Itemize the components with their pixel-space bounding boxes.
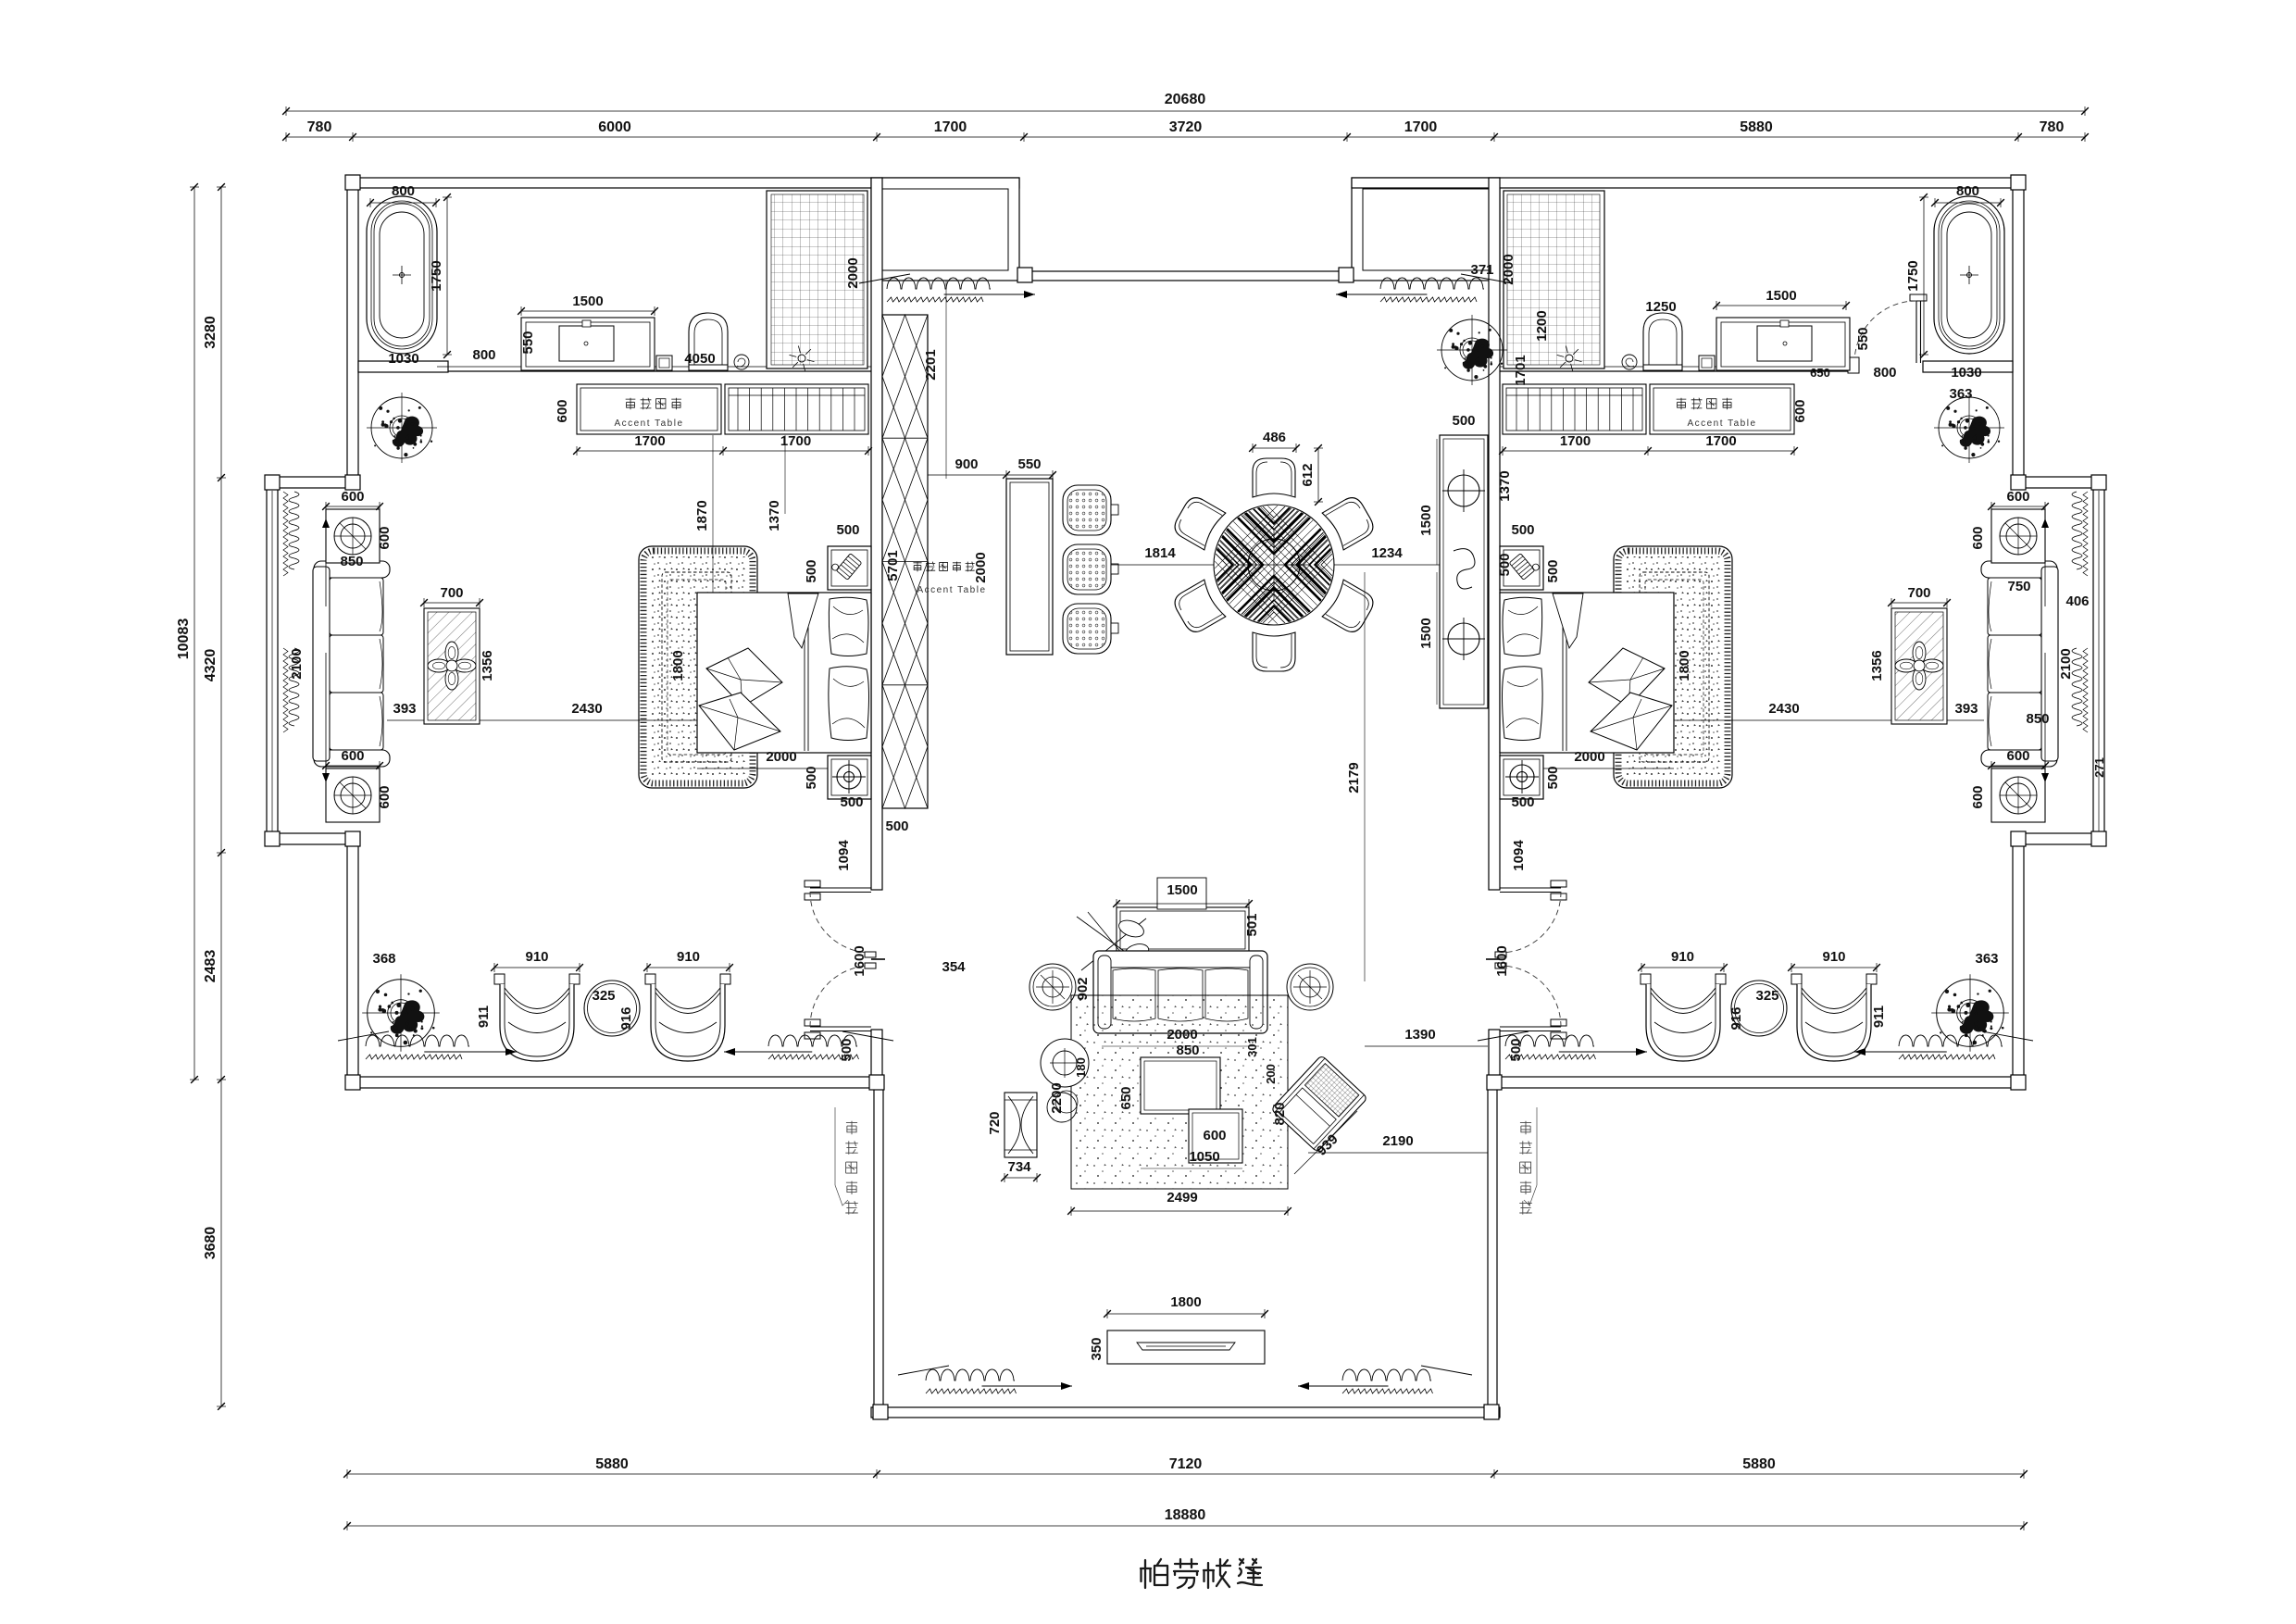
svg-text:500: 500: [1545, 766, 1561, 789]
svg-text:Accent Table: Accent Table: [917, 585, 986, 595]
svg-text:2000: 2000: [1574, 749, 1604, 765]
svg-text:1390: 1390: [1404, 1027, 1435, 1043]
svg-text:916: 916: [1728, 1006, 1744, 1030]
svg-text:612: 612: [1300, 463, 1316, 486]
svg-text:600: 600: [1792, 399, 1808, 422]
svg-text:2430: 2430: [571, 701, 602, 717]
svg-text:Accent Table: Accent Table: [614, 418, 683, 429]
svg-text:550: 550: [520, 331, 536, 354]
svg-text:600: 600: [555, 399, 570, 422]
svg-text:500: 500: [1511, 522, 1534, 538]
svg-text:1700: 1700: [634, 433, 665, 449]
svg-text:10083: 10083: [176, 618, 192, 660]
svg-text:180: 180: [1074, 1057, 1088, 1078]
svg-text:2483: 2483: [203, 950, 218, 983]
svg-text:910: 910: [525, 949, 548, 965]
svg-text:1500: 1500: [1167, 882, 1197, 898]
svg-text:363: 363: [1975, 951, 1998, 967]
svg-text:200: 200: [1264, 1064, 1278, 1084]
svg-text:911: 911: [1871, 1006, 1887, 1028]
svg-text:368: 368: [372, 951, 395, 967]
svg-text:600: 600: [1970, 526, 1986, 549]
svg-text:393: 393: [1954, 701, 1978, 717]
svg-text:500: 500: [1452, 413, 1475, 429]
svg-text:1750: 1750: [429, 260, 444, 291]
svg-text:1600: 1600: [1494, 945, 1510, 976]
svg-text:820: 820: [1272, 1102, 1288, 1125]
svg-text:20680: 20680: [1165, 92, 1206, 107]
svg-text:1356: 1356: [1869, 650, 1885, 681]
svg-text:2179: 2179: [1346, 762, 1362, 793]
svg-text:1701: 1701: [1513, 355, 1529, 385]
svg-text:2000: 2000: [1501, 254, 1516, 284]
svg-text:800: 800: [1873, 365, 1896, 381]
svg-text:5701: 5701: [885, 550, 901, 581]
svg-text:700: 700: [1907, 585, 1930, 601]
svg-text:3680: 3680: [203, 1227, 218, 1260]
svg-text:911: 911: [476, 1006, 492, 1028]
svg-text:550: 550: [1017, 456, 1041, 472]
svg-text:2100: 2100: [289, 648, 305, 679]
svg-text:1094: 1094: [836, 840, 852, 871]
svg-text:1050: 1050: [1189, 1149, 1219, 1165]
svg-text:1750: 1750: [1905, 260, 1921, 291]
svg-text:500: 500: [1545, 559, 1561, 582]
svg-text:2190: 2190: [1382, 1133, 1413, 1149]
svg-text:2430: 2430: [1768, 701, 1799, 717]
svg-text:1800: 1800: [1677, 650, 1692, 681]
svg-text:1700: 1700: [934, 119, 967, 135]
svg-text:500: 500: [885, 818, 908, 834]
svg-text:3280: 3280: [203, 316, 218, 349]
svg-text:1356: 1356: [480, 650, 495, 681]
svg-text:1200: 1200: [1534, 310, 1550, 341]
svg-text:1370: 1370: [1497, 470, 1513, 501]
svg-text:850: 850: [2026, 711, 2049, 727]
svg-text:800: 800: [392, 183, 415, 199]
svg-text:1870: 1870: [694, 500, 710, 531]
svg-text:2499: 2499: [1167, 1190, 1197, 1206]
svg-text:2000: 2000: [1167, 1027, 1197, 1043]
svg-text:900: 900: [955, 456, 978, 472]
svg-text:2000: 2000: [845, 257, 861, 288]
svg-text:1370: 1370: [767, 500, 782, 531]
svg-text:1030: 1030: [388, 351, 418, 367]
svg-text:1800: 1800: [1170, 1294, 1201, 1310]
svg-text:1500: 1500: [572, 294, 603, 309]
svg-text:4320: 4320: [203, 649, 218, 682]
svg-text:600: 600: [1970, 785, 1986, 808]
svg-text:650: 650: [1118, 1086, 1134, 1109]
svg-text:500: 500: [836, 522, 859, 538]
svg-text:271: 271: [2092, 757, 2106, 778]
svg-text:5880: 5880: [595, 1456, 629, 1472]
svg-text:1700: 1700: [1705, 433, 1736, 449]
svg-text:1600: 1600: [852, 945, 867, 976]
svg-text:4050: 4050: [684, 351, 715, 367]
svg-text:1814: 1814: [1144, 545, 1176, 561]
svg-text:850: 850: [340, 554, 363, 569]
svg-text:600: 600: [2006, 489, 2029, 505]
svg-text:301: 301: [1245, 1037, 1259, 1057]
svg-text:916: 916: [618, 1006, 634, 1030]
svg-text:393: 393: [393, 701, 416, 717]
svg-text:325: 325: [592, 988, 615, 1004]
svg-text:600: 600: [377, 785, 393, 808]
svg-text:354: 354: [942, 959, 966, 975]
svg-text:600: 600: [341, 748, 364, 764]
svg-text:1700: 1700: [1404, 119, 1438, 135]
svg-text:7120: 7120: [1169, 1456, 1203, 1472]
svg-text:1800: 1800: [670, 650, 686, 681]
svg-text:780: 780: [2040, 119, 2065, 135]
svg-text:600: 600: [1203, 1128, 1226, 1143]
svg-text:500: 500: [840, 794, 863, 810]
svg-text:650: 650: [1810, 366, 1830, 380]
svg-text:600: 600: [377, 526, 393, 549]
svg-text:1500: 1500: [1766, 288, 1796, 304]
svg-text:371: 371: [1470, 262, 1493, 278]
svg-text:500: 500: [1511, 794, 1534, 810]
svg-text:Accent Table: Accent Table: [1687, 418, 1756, 429]
svg-text:750: 750: [2007, 579, 2030, 594]
svg-text:2000: 2000: [766, 749, 796, 765]
svg-text:800: 800: [1956, 183, 1979, 199]
svg-text:910: 910: [1671, 949, 1694, 965]
svg-text:500: 500: [839, 1038, 855, 1061]
svg-text:486: 486: [1263, 430, 1286, 445]
svg-text:18880: 18880: [1165, 1507, 1206, 1523]
svg-text:3720: 3720: [1169, 119, 1203, 135]
svg-text:1030: 1030: [1951, 365, 1981, 381]
svg-text:800: 800: [472, 347, 495, 363]
svg-text:1234: 1234: [1371, 545, 1403, 561]
svg-text:600: 600: [341, 489, 364, 505]
svg-text:500: 500: [1508, 1038, 1524, 1061]
svg-text:2200: 2200: [1049, 1082, 1065, 1113]
svg-text:2201: 2201: [923, 349, 939, 380]
svg-text:325: 325: [1755, 988, 1778, 1004]
svg-text:6000: 6000: [598, 119, 631, 135]
svg-text:720: 720: [987, 1111, 1003, 1134]
svg-text:550: 550: [1855, 327, 1871, 350]
svg-text:902: 902: [1075, 977, 1091, 1000]
svg-text:700: 700: [440, 585, 463, 601]
svg-text:5880: 5880: [1742, 1456, 1776, 1472]
svg-text:850: 850: [1176, 1043, 1199, 1058]
svg-text:1250: 1250: [1645, 299, 1676, 315]
svg-text:2100: 2100: [2058, 648, 2074, 679]
svg-text:5880: 5880: [1740, 119, 1773, 135]
svg-text:1700: 1700: [1560, 433, 1591, 449]
svg-text:406: 406: [2065, 593, 2089, 609]
svg-text:910: 910: [677, 949, 700, 965]
svg-text:780: 780: [307, 119, 332, 135]
svg-text:500: 500: [1497, 553, 1513, 576]
svg-text:350: 350: [1089, 1337, 1104, 1360]
svg-text:363: 363: [1949, 386, 1972, 402]
svg-text:1500: 1500: [1418, 618, 1434, 648]
svg-text:600: 600: [2006, 748, 2029, 764]
svg-text:500: 500: [804, 559, 819, 582]
svg-text:500: 500: [804, 766, 819, 789]
svg-text:1500: 1500: [1418, 505, 1434, 535]
svg-text:1094: 1094: [1511, 840, 1527, 871]
svg-text:2000: 2000: [973, 552, 989, 582]
svg-text:501: 501: [1244, 913, 1260, 936]
svg-text:734: 734: [1007, 1159, 1031, 1175]
svg-text:910: 910: [1822, 949, 1845, 965]
